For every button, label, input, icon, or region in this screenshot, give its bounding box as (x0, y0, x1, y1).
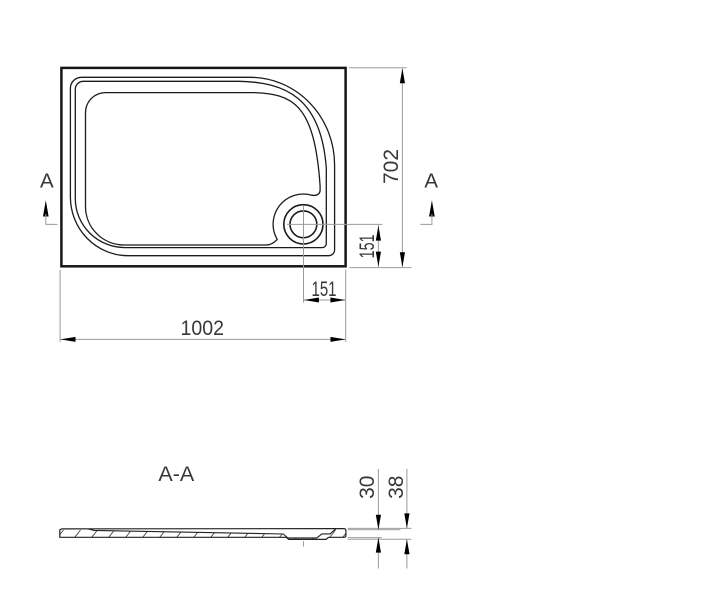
svg-text:151: 151 (356, 234, 379, 258)
svg-text:30: 30 (356, 476, 379, 499)
svg-text:A: A (424, 170, 438, 193)
svg-text:38: 38 (385, 476, 408, 499)
svg-text:A: A (40, 169, 54, 192)
svg-text:702: 702 (380, 149, 403, 184)
svg-text:1002: 1002 (181, 317, 225, 340)
svg-text:151: 151 (312, 278, 337, 301)
svg-text:A-A: A-A (158, 462, 195, 486)
